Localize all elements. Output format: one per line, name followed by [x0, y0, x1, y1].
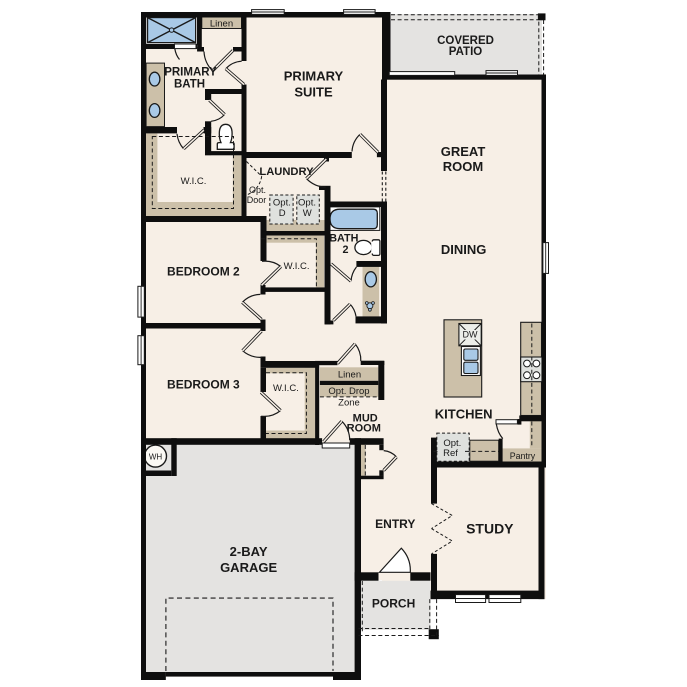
svg-text:Linen: Linen — [210, 19, 233, 30]
svg-text:ROOM: ROOM — [347, 423, 381, 435]
svg-text:Door: Door — [247, 195, 267, 205]
svg-text:PRIMARY: PRIMARY — [284, 69, 344, 84]
svg-text:DW: DW — [463, 330, 478, 340]
svg-text:Opt.: Opt. — [298, 198, 316, 209]
svg-text:2: 2 — [342, 244, 348, 256]
svg-text:LAUNDRY: LAUNDRY — [259, 166, 314, 178]
svg-text:Pantry: Pantry — [510, 451, 536, 461]
svg-text:Zone: Zone — [338, 398, 360, 409]
svg-text:W.I.C.: W.I.C. — [273, 383, 299, 394]
svg-text:PRIMARY: PRIMARY — [164, 67, 217, 79]
svg-text:D: D — [279, 208, 286, 219]
svg-text:Opt.: Opt. — [249, 185, 266, 195]
svg-text:STUDY: STUDY — [466, 521, 514, 537]
svg-text:Ref: Ref — [443, 448, 458, 459]
svg-text:BATH: BATH — [329, 233, 358, 245]
svg-text:W: W — [303, 208, 312, 219]
svg-text:2-BAY: 2-BAY — [230, 544, 268, 559]
svg-text:Opt.: Opt. — [273, 198, 291, 209]
svg-text:GARAGE: GARAGE — [220, 560, 277, 575]
svg-text:WH: WH — [149, 452, 163, 461]
svg-text:PORCH: PORCH — [372, 597, 415, 611]
svg-text:DINING: DINING — [441, 242, 487, 257]
svg-text:W.I.C.: W.I.C. — [181, 176, 207, 187]
svg-text:BATH: BATH — [174, 79, 205, 91]
svg-text:KITCHEN: KITCHEN — [435, 407, 493, 422]
svg-text:ROOM: ROOM — [443, 159, 483, 174]
svg-text:Linen: Linen — [338, 370, 361, 381]
svg-text:ENTRY: ENTRY — [375, 517, 415, 531]
svg-text:BEDROOM 2: BEDROOM 2 — [167, 265, 240, 279]
svg-text:SUITE: SUITE — [294, 85, 333, 100]
svg-text:BEDROOM 3: BEDROOM 3 — [167, 378, 240, 392]
svg-text:PATIO: PATIO — [449, 46, 482, 58]
svg-text:W.I.C.: W.I.C. — [284, 261, 310, 272]
svg-text:GREAT: GREAT — [441, 144, 486, 159]
svg-text:Opt. Drop: Opt. Drop — [328, 386, 369, 397]
